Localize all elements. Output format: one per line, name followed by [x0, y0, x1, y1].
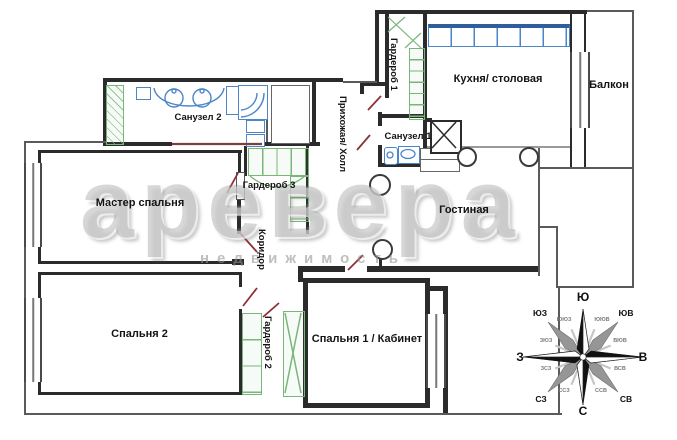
- vanity-sinks-icon: [154, 88, 224, 107]
- wall-segment: [312, 82, 316, 146]
- toilet-fixture: [246, 120, 265, 133]
- room-label-sanuzel1: Санузел 1: [383, 131, 433, 142]
- outline-wall-segment: [343, 81, 377, 83]
- wall-segment: [303, 403, 430, 408]
- compass-label-minor: ЗЮЗ: [540, 338, 553, 344]
- compass-label-minor: ЮЮЗ: [557, 317, 572, 323]
- compass-label-bottom-right: СВ: [620, 394, 632, 404]
- compass-label-top: Ю: [577, 290, 589, 304]
- wall-segment: [584, 12, 586, 54]
- compass-label-minor: ССЗ: [558, 388, 569, 394]
- outline-wall-segment: [24, 413, 562, 415]
- watermark-subtitle: недвижимость: [200, 250, 406, 267]
- wardrobe-unit: [409, 48, 425, 120]
- outline-wall-segment: [24, 141, 106, 143]
- shaft-box: [271, 85, 310, 144]
- compass-label-minor: ЮЮВ: [594, 317, 609, 323]
- compass-label-minor: ВЮВ: [613, 338, 627, 344]
- wall-segment: [360, 86, 364, 94]
- room-label-garderob1: Гардероб 1: [388, 38, 399, 110]
- wall-segment: [584, 126, 586, 168]
- wall-segment: [303, 278, 430, 283]
- wall-segment: [375, 10, 587, 14]
- kitchen-cabinet-row: [428, 24, 570, 47]
- wardrobe-unit: [242, 313, 262, 395]
- wall-segment: [570, 12, 572, 54]
- window: [24, 163, 42, 247]
- window: [426, 351, 446, 388]
- compass-label-bottom: С: [579, 404, 588, 418]
- outline-wall-segment: [632, 10, 634, 288]
- room-label-bedroom2: Спальня 2: [92, 328, 187, 340]
- column: [519, 147, 539, 167]
- wardrobe-unit: [106, 85, 124, 145]
- room-label-kitchen: Кухня/ столовая: [450, 73, 546, 85]
- compass-label-minor: ВСВ: [614, 366, 626, 372]
- wall-segment: [38, 272, 242, 275]
- room-label-hall: Прихожая/ Холл: [337, 96, 348, 238]
- outline-wall-segment: [538, 226, 558, 228]
- room-label-garderob2: Гардероб 2: [262, 316, 273, 390]
- wall-segment: [570, 126, 572, 168]
- wall-segment: [38, 392, 240, 395]
- wall-segment: [298, 266, 303, 282]
- bidet-fixture: [246, 134, 265, 147]
- room-label-master: Мастер спальня: [90, 197, 190, 209]
- outline-wall-segment: [538, 167, 634, 169]
- compass-label-top-right: ЮВ: [619, 308, 634, 318]
- outline-wall-segment: [587, 10, 634, 12]
- compass-label-right: В: [639, 350, 648, 364]
- wardrobe-unit: [283, 311, 305, 397]
- shower-cabin: [238, 85, 268, 120]
- window: [426, 314, 446, 351]
- room-label-garderob3: Гардероб 3: [238, 180, 300, 191]
- room-label-living: Гостиная: [424, 204, 504, 216]
- room-label-sanuzel2: Санузел 2: [158, 112, 238, 123]
- wall-segment: [427, 286, 447, 291]
- room-label-bedroom1: Спальня 1 / Кабинет: [308, 333, 426, 345]
- wall-segment: [378, 112, 382, 126]
- compass-label-top-left: ЮЗ: [533, 308, 547, 318]
- room-label-corridor: Коридор: [256, 229, 267, 307]
- compass-label-left: З: [516, 350, 524, 364]
- floor-plan-image: аревера недвижимость Санузел 2 Гардероб …: [0, 0, 677, 440]
- wall-segment: [375, 10, 379, 82]
- wall-segment: [103, 78, 343, 82]
- window: [24, 298, 42, 382]
- compass-label-minor: ЗСЗ: [541, 366, 552, 372]
- wall-segment: [239, 275, 242, 287]
- compass-label-bottom-left: СЗ: [535, 394, 546, 404]
- outline-wall-segment: [556, 226, 558, 288]
- compass-label-minor: ССВ: [595, 388, 607, 394]
- bathroom-cabinet: [136, 87, 151, 100]
- room-label-balcony: Балкон: [586, 79, 632, 91]
- outline-wall-segment: [538, 146, 540, 276]
